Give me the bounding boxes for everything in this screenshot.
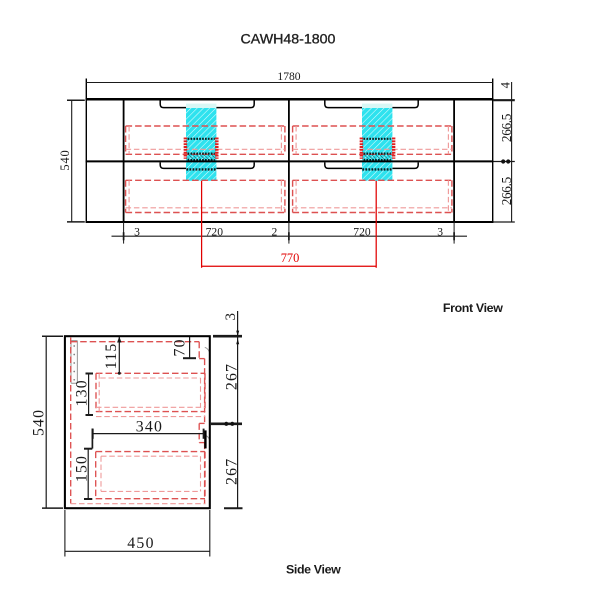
svg-text:3: 3 (134, 225, 140, 238)
svg-text:115: 115 (103, 343, 120, 370)
svg-text:720: 720 (353, 225, 371, 238)
svg-text:CAWH48-1800: CAWH48-1800 (241, 32, 336, 48)
svg-text:3: 3 (437, 225, 443, 238)
svg-text:4: 4 (498, 81, 512, 88)
svg-text:3: 3 (223, 313, 239, 321)
svg-text:266.5: 266.5 (499, 176, 514, 205)
svg-text:340: 340 (136, 419, 163, 436)
svg-text:266.5: 266.5 (499, 113, 514, 142)
svg-text:540: 540 (30, 409, 47, 436)
svg-text:Front View: Front View (443, 301, 503, 315)
svg-text:Side View: Side View (286, 563, 341, 577)
svg-text:770: 770 (281, 251, 300, 265)
svg-text:150: 150 (74, 455, 91, 482)
svg-text:130: 130 (74, 379, 91, 406)
svg-text:540: 540 (58, 149, 72, 170)
svg-text:267: 267 (223, 363, 240, 390)
svg-text:720: 720 (206, 225, 224, 238)
svg-text:450: 450 (127, 535, 155, 552)
svg-text:70: 70 (172, 338, 189, 356)
svg-text:2: 2 (272, 225, 278, 238)
svg-text:267: 267 (223, 458, 240, 485)
svg-text:1780: 1780 (277, 70, 300, 83)
